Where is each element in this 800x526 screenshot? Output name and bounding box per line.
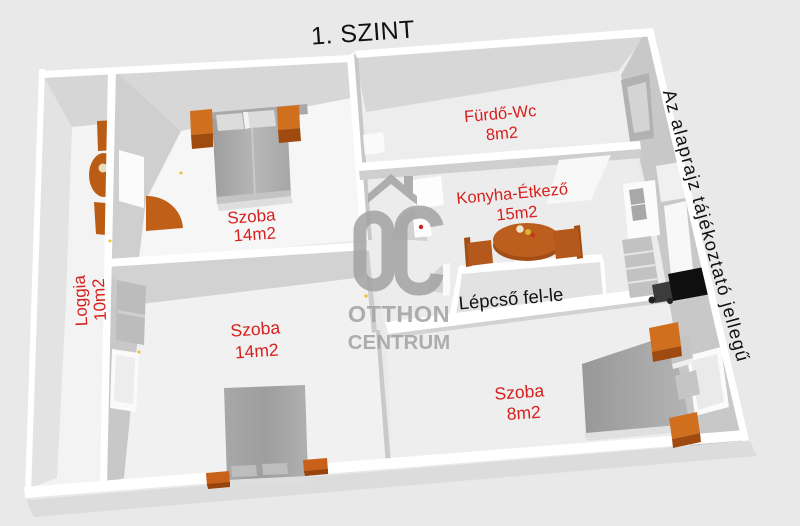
svg-text:14m2: 14m2 — [233, 223, 277, 245]
svg-text:Szoba: Szoba — [494, 380, 545, 403]
svg-text:14m2: 14m2 — [234, 339, 279, 362]
svg-text:8m2: 8m2 — [506, 402, 541, 424]
svg-text:OTTHON: OTTHON — [348, 301, 450, 327]
svg-text:10m2: 10m2 — [89, 278, 110, 321]
svg-text:CENTRUM: CENTRUM — [348, 331, 451, 354]
svg-text:Szoba: Szoba — [230, 317, 281, 340]
svg-text:15m2: 15m2 — [496, 203, 539, 225]
svg-text:8m2: 8m2 — [485, 124, 519, 145]
